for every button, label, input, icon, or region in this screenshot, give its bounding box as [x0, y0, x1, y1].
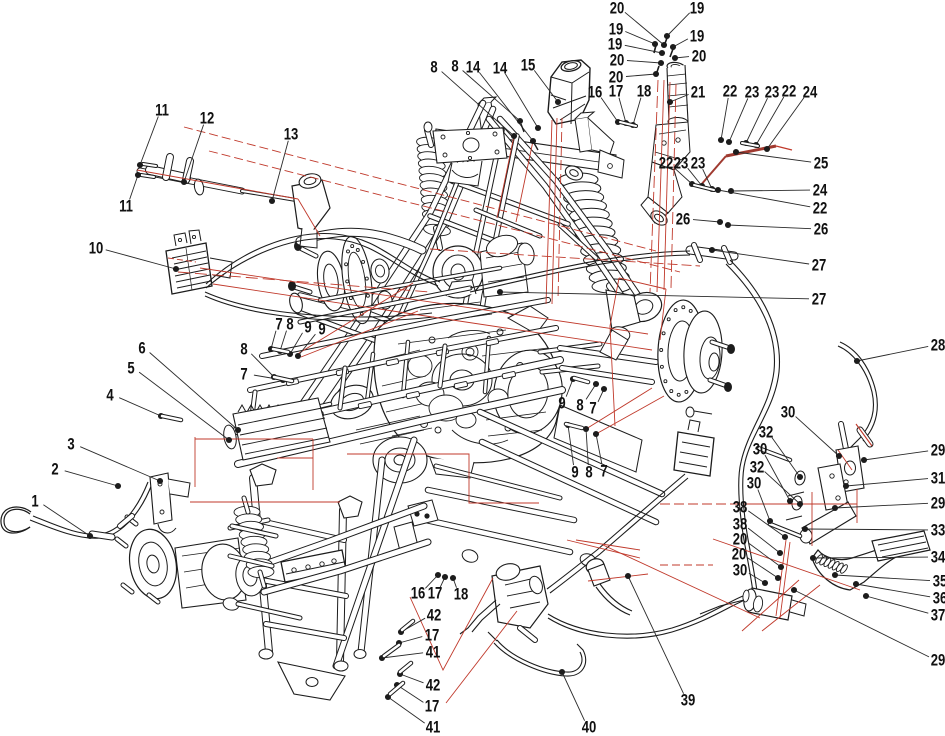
svg-text:18: 18 [454, 585, 469, 604]
svg-text:5: 5 [127, 359, 134, 378]
svg-text:23: 23 [691, 154, 706, 173]
svg-text:19: 19 [690, 27, 705, 46]
svg-text:30: 30 [733, 561, 748, 580]
svg-text:37: 37 [931, 606, 945, 625]
svg-text:23: 23 [765, 83, 780, 102]
svg-text:24: 24 [813, 181, 828, 200]
svg-text:9: 9 [318, 320, 325, 339]
svg-text:9: 9 [304, 318, 311, 337]
svg-text:23: 23 [674, 154, 689, 173]
svg-text:34: 34 [931, 548, 945, 567]
svg-text:42: 42 [427, 606, 442, 625]
svg-text:7: 7 [275, 315, 282, 334]
svg-text:8: 8 [451, 57, 458, 76]
svg-text:22: 22 [723, 82, 738, 101]
svg-text:31: 31 [931, 469, 945, 488]
svg-text:18: 18 [637, 82, 652, 101]
svg-text:29: 29 [931, 651, 945, 670]
svg-text:41: 41 [426, 643, 441, 662]
svg-text:7: 7 [589, 399, 596, 418]
svg-text:6: 6 [138, 339, 145, 358]
svg-text:9: 9 [571, 463, 578, 482]
svg-text:20: 20 [692, 47, 707, 66]
svg-text:8: 8 [585, 463, 592, 482]
svg-text:42: 42 [426, 676, 441, 695]
svg-text:11: 11 [119, 197, 133, 216]
svg-text:30: 30 [747, 474, 762, 493]
svg-text:15: 15 [521, 56, 536, 75]
svg-text:14: 14 [493, 59, 508, 78]
svg-text:3: 3 [67, 435, 74, 454]
svg-text:22: 22 [659, 154, 674, 173]
svg-text:17: 17 [425, 697, 440, 716]
svg-text:22: 22 [813, 199, 828, 218]
svg-text:7: 7 [600, 462, 607, 481]
svg-text:23: 23 [745, 83, 760, 102]
svg-text:27: 27 [812, 256, 827, 275]
svg-text:28: 28 [931, 336, 945, 355]
svg-text:27: 27 [812, 290, 827, 309]
svg-text:41: 41 [426, 718, 441, 736]
svg-text:29: 29 [931, 494, 945, 513]
svg-text:7: 7 [240, 365, 247, 384]
svg-text:25: 25 [814, 154, 829, 173]
svg-text:14: 14 [466, 58, 481, 77]
svg-text:13: 13 [284, 125, 299, 144]
svg-text:4: 4 [106, 386, 114, 405]
svg-text:8: 8 [240, 340, 247, 359]
svg-text:10: 10 [89, 239, 104, 258]
svg-text:19: 19 [690, 0, 705, 18]
svg-text:17: 17 [609, 82, 624, 101]
svg-text:29: 29 [931, 441, 945, 460]
svg-text:40: 40 [582, 718, 597, 736]
svg-text:16: 16 [411, 584, 426, 603]
svg-text:24: 24 [803, 83, 818, 102]
svg-text:26: 26 [814, 220, 829, 239]
svg-text:30: 30 [781, 403, 796, 422]
svg-text:1: 1 [31, 492, 38, 511]
svg-text:8: 8 [430, 58, 437, 77]
svg-text:30: 30 [753, 440, 768, 459]
svg-text:9: 9 [558, 394, 565, 413]
svg-text:22: 22 [782, 82, 797, 101]
svg-text:20: 20 [610, 0, 625, 18]
svg-text:2: 2 [51, 460, 58, 479]
svg-text:8: 8 [576, 396, 583, 415]
svg-text:21: 21 [691, 83, 706, 102]
svg-text:16: 16 [588, 83, 603, 102]
svg-text:33: 33 [931, 521, 945, 540]
svg-text:8: 8 [286, 315, 293, 334]
svg-text:11: 11 [155, 101, 169, 120]
svg-text:26: 26 [676, 210, 691, 229]
svg-text:17: 17 [428, 584, 443, 603]
svg-text:12: 12 [200, 109, 215, 128]
svg-text:39: 39 [681, 691, 696, 710]
